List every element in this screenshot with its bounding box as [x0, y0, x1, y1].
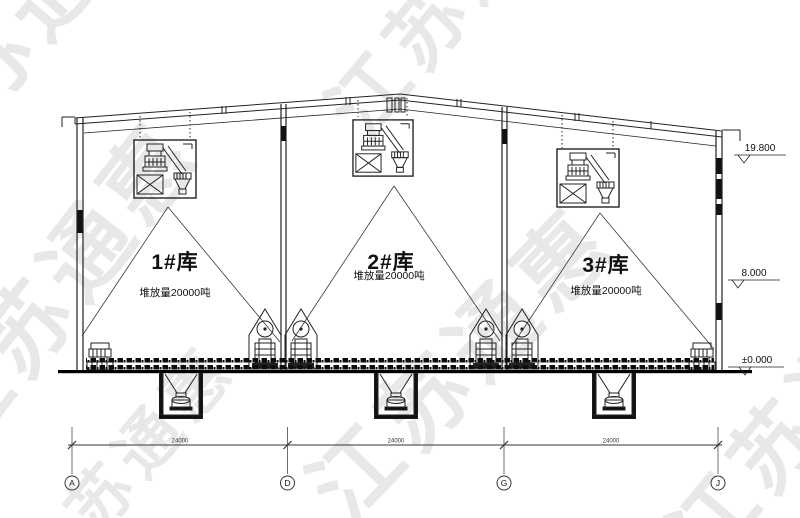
discharge-pit-3 [592, 373, 636, 419]
bay-1-capacity: 堆放量20000吨 [133, 285, 217, 300]
equipment-box-1 [134, 140, 196, 198]
material-band [86, 356, 714, 370]
elevation-value: 19.800 [745, 143, 776, 154]
bay-3-capacity: 堆放量20000吨 [564, 283, 648, 298]
grid-axis-label: A [69, 478, 75, 488]
grid-axis-label: G [501, 478, 508, 488]
bay-2-capacity: 堆放量20000吨 [347, 268, 431, 283]
drawing-canvas: 江苏通惠 江苏通惠 江苏通惠 江苏通惠 江苏通惠 江苏通惠 [0, 0, 800, 518]
dimension-string: 24000 24000 24000 [68, 427, 722, 474]
column-interior-1 [281, 104, 286, 371]
bay-3-label: 3#库 [571, 249, 641, 279]
elevation-marker-mid: 8.000 [728, 268, 780, 288]
column-interior-2 [502, 107, 507, 371]
grid-axis-label: J [716, 478, 720, 488]
span-dimension: 24000 [172, 439, 189, 445]
elevation-value: 8.000 [741, 268, 766, 279]
gutter-left [62, 117, 75, 127]
discharge-pit-1 [159, 373, 203, 419]
grid-axis-label: D [284, 478, 290, 488]
elevation-value: ±0.000 [742, 355, 773, 366]
bay-1-label: 1#库 [140, 246, 210, 276]
discharge-pit-2 [374, 373, 418, 419]
column-left [77, 118, 83, 371]
grid-axes: A D G J [65, 476, 725, 490]
equipment-box-3 [557, 149, 619, 207]
gutter-right [722, 130, 740, 141]
span-dimension: 24000 [603, 439, 620, 445]
equipment-box-2 [353, 120, 413, 176]
span-dimension: 24000 [388, 439, 405, 445]
elevation-marker-roof: 19.800 [734, 143, 786, 163]
ground-line [58, 370, 752, 373]
